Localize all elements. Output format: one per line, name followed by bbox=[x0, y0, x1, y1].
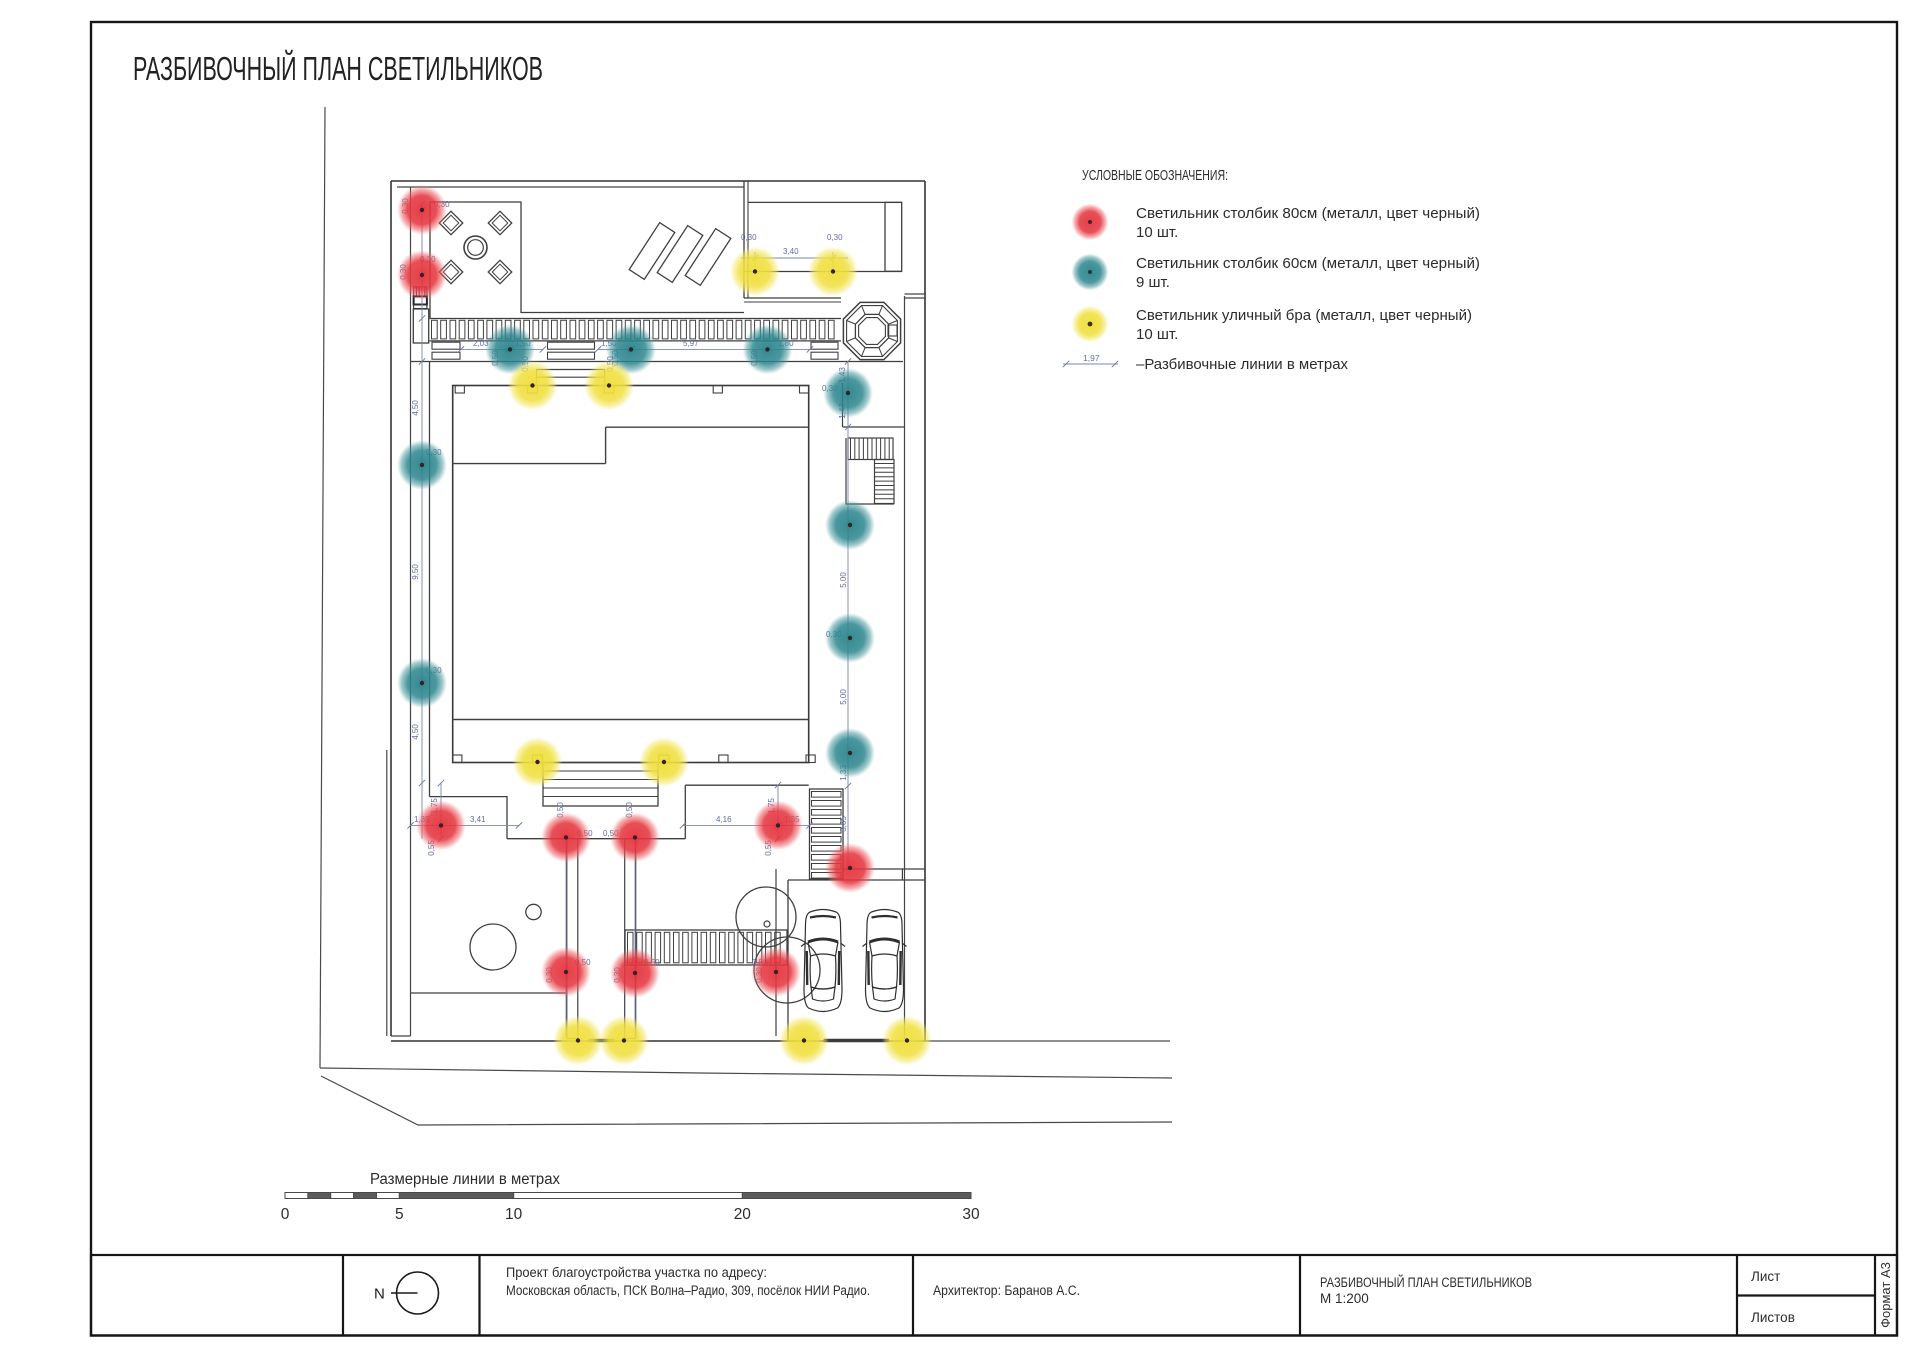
svg-text:М 1:200: М 1:200 bbox=[1320, 1291, 1369, 1306]
svg-text:Светильник столбик 60см (метал: Светильник столбик 60см (металл, цвет че… bbox=[1136, 255, 1480, 272]
svg-text:10 шт.: 10 шт. bbox=[1136, 224, 1178, 241]
svg-text:Светильник уличный бра (металл: Светильник уличный бра (металл, цвет чер… bbox=[1136, 307, 1472, 324]
svg-text:Московская область, ПСК Волна–: Московская область, ПСК Волна–Радио, 309… bbox=[506, 1283, 870, 1298]
svg-text:–Разбивочные линии в метрах: –Разбивочные линии в метрах bbox=[1136, 356, 1348, 373]
svg-text:5,00: 5,00 bbox=[839, 572, 848, 588]
svg-text:4,16: 4,16 bbox=[716, 815, 732, 824]
svg-text:Архитектор: Баранов А.С.: Архитектор: Баранов А.С. bbox=[933, 1283, 1080, 1298]
svg-text:Проект благоустройства участка: Проект благоустройства участка по адресу… bbox=[506, 1265, 767, 1280]
svg-text:3,65: 3,65 bbox=[839, 816, 848, 832]
svg-text:Лист: Лист bbox=[1751, 1269, 1780, 1284]
svg-text:10: 10 bbox=[505, 1206, 523, 1223]
svg-text:30: 30 bbox=[962, 1206, 980, 1223]
svg-text:5,97: 5,97 bbox=[683, 339, 699, 348]
svg-text:20: 20 bbox=[734, 1206, 752, 1223]
svg-text:3,40: 3,40 bbox=[783, 247, 799, 256]
svg-text:Размерные линии в метрах: Размерные линии в метрах bbox=[370, 1171, 560, 1188]
svg-text:РАЗБИВОЧНЫЙ ПЛАН СВЕТИЛЬНИКОВ: РАЗБИВОЧНЫЙ ПЛАН СВЕТИЛЬНИКОВ bbox=[133, 50, 543, 87]
svg-text:Формат А3: Формат А3 bbox=[1878, 1262, 1893, 1328]
svg-text:5,00: 5,00 bbox=[839, 689, 848, 705]
svg-text:10 шт.: 10 шт. bbox=[1136, 326, 1178, 343]
svg-text:3,41: 3,41 bbox=[470, 815, 486, 824]
svg-text:5: 5 bbox=[395, 1206, 404, 1223]
svg-text:9 шт.: 9 шт. bbox=[1136, 274, 1170, 291]
svg-text:4,50: 4,50 bbox=[411, 724, 420, 740]
svg-text:0: 0 bbox=[281, 1206, 290, 1223]
svg-text:УСЛОВНЫЕ ОБОЗНАЧЕНИЯ:: УСЛОВНЫЕ ОБОЗНАЧЕНИЯ: bbox=[1082, 168, 1228, 184]
svg-text:0,30: 0,30 bbox=[827, 233, 843, 242]
svg-text:РАЗБИВОЧНЫЙ ПЛАН СВЕТИЛЬНИКОВ: РАЗБИВОЧНЫЙ ПЛАН СВЕТИЛЬНИКОВ bbox=[1320, 1275, 1532, 1290]
svg-text:1,97: 1,97 bbox=[1083, 353, 1100, 363]
svg-text:Светильник столбик 80см (метал: Светильник столбик 80см (металл, цвет че… bbox=[1136, 205, 1480, 222]
svg-text:9,50: 9,50 bbox=[411, 564, 420, 580]
svg-text:Листов: Листов bbox=[1751, 1310, 1795, 1325]
svg-text:N: N bbox=[374, 1286, 385, 1303]
svg-text:0,30: 0,30 bbox=[741, 233, 757, 242]
svg-text:4,50: 4,50 bbox=[411, 400, 420, 416]
